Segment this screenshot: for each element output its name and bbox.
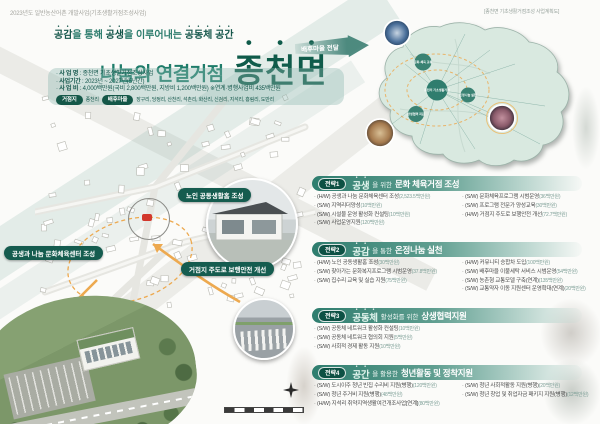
village-photo-3 [489, 105, 515, 131]
info-row: 사 업 비 : 4,000백만원(국비 2,800백만원, 지방비 1,200백… [56, 86, 336, 94]
project-info-box: 사 업 명 : 종천면 기초생활거점조성사업 사업기간 : 2023년 ~ 20… [48, 68, 344, 105]
program-caption: 2023년도 일반농산어촌 개발사업(기초생활거점조성사업) [10, 8, 146, 17]
senior-home-site-marker [128, 198, 170, 240]
strategy1-header: 전략1 공생 을 위한 문화 체육거점 조성 [312, 176, 582, 191]
info-row: 사 업 명 : 종천면 기초생활거점조성사업 [56, 71, 336, 79]
strategy2-badge: 전략2 [318, 244, 346, 256]
base-value: 종천리 [86, 96, 99, 104]
program-item: (H/W) 커뮤니티 승합차 도입(100백만원) [462, 259, 600, 268]
label-pedestrian-safety: 거점지 주도로 보행안전 개선 [181, 262, 274, 276]
center-building [77, 327, 141, 371]
program-item: (H/W) 지석리 취약지역생활여건개조사업[연계](80백만원) [314, 400, 462, 409]
strategy2-header: 전략2 공감 을 통한 온정나눔 실천 [312, 242, 582, 257]
node-label: 종천리 기초생활거점 [424, 87, 450, 92]
program-item: (S/W) 교통약자 이동 지원센터 운영확대(연계)(20백만원) [462, 285, 600, 294]
site-highlight [142, 214, 152, 221]
strategy2-items: (H/W) 노인 공동생활홈 조성(30백만원) (S/W) 찾아가는 문화복지… [314, 259, 600, 294]
villages-arrow-label: 배후마을 전달 [295, 42, 339, 54]
strategy3-items: (S/W) 공동체 네트워크 활성화 컨설팅(10백만원) (S/W) 공동체 … [314, 325, 600, 351]
crosswalk [240, 328, 287, 351]
program-item: (S/W) 문화체육프로그램 시범운영(36백만원) [462, 193, 600, 202]
base-badge: 거점지 [56, 95, 83, 105]
program-item: (S/W) 지역리더양성(10백만원) [314, 202, 462, 211]
north-compass-icon [283, 382, 299, 402]
green-median [235, 322, 293, 325]
program-item: (S/W) 사회적 경제 활동 지원(10백만원) [314, 343, 462, 352]
subtitle-word: 공감 [54, 30, 72, 41]
program-item: (S/W) 청년 창업 및 취업자금 패키지 지원(병행)(12백만원) [462, 391, 600, 400]
region-map-caption: [종천면 기초생활거점조성 사업계획도] [484, 8, 559, 15]
program-item: (S/W) 도시이주 청년 빈집 수리비 지원(병행)(120백만원) [314, 382, 462, 391]
strategy4-items: (S/W) 도시이주 청년 빈집 수리비 지원(병행)(120백만원) (S/W… [314, 382, 600, 408]
program-item: (S/W) 찾아가는 문화복지프로그램 시범운영(37.8백만원) [314, 268, 462, 277]
township-plan-map: 문화·체육 교류 종천리 기초생활거점 온정나눔 실천 상생협력 지원 [315, 14, 600, 174]
strategy1-badge: 전략1 [318, 178, 346, 190]
program-item: (S/W) 프로그램 전문가 양성교육(30백만원) [462, 202, 600, 211]
strategy1-items: (H/W) 공생과 나눔 문화체육센터 조성(2,523.5백만원) (S/W)… [314, 193, 600, 228]
program-item: (S/W) 청년 주거비 지원(병행)(48백만원) [314, 391, 462, 400]
program-item: (H/W) 노인 공동생활홈 조성(30백만원) [314, 259, 462, 268]
program-item: (S/W) 사업운영지원(120백만원) [314, 219, 462, 228]
village-photo-1 [384, 20, 410, 46]
label-senior-home: 노인 공동생활홈 조성 [178, 188, 251, 202]
program-item: (S/W) 집수리 교육 및 실습 지원(75백만원) [314, 277, 462, 286]
poster: 2023년도 일반농산어촌 개발사업(기초생활거점조성사업) 공감을 통해 공생… [0, 0, 600, 424]
strategy4-badge: 전략4 [318, 367, 346, 379]
program-item: (S/W) 공동체 네트워크 협의회 지원(5백만원) [314, 334, 462, 343]
villages-badge: 배후마을 [102, 95, 133, 105]
program-item: (S/W) 배후마을 이불세탁 서비스 시범운영(54백만원) [462, 268, 600, 277]
program-item: (H/W) 거점지 주도로 보행안전 개선(72.7백만원) [462, 211, 600, 220]
villages-row: 거점지 종천리 배후마을 장구리, 당정리, 산천리, 석촌리, 화산리, 신검… [56, 95, 336, 105]
node-label: 문화·체육 교류 [414, 59, 433, 64]
program-item: (H/W) 공생과 나눔 문화체육센터 조성(2,523.5백만원) [314, 193, 462, 202]
street-improvement-photo [233, 298, 295, 360]
label-culture-center: 공생과 나눔 문화체육센터 조성 [4, 246, 103, 260]
program-item: (S/W) 공동체 네트워크 활성화 컨설팅(10백만원) [314, 325, 462, 334]
villages-list: 장구리, 당정리, 산천리, 석촌리, 화산리, 신검리, 지석리, 흥림리, … [136, 96, 274, 104]
program-item: (S/W) 농촌형 교통모델 구축(연계)(135백만원) [462, 277, 600, 286]
village-photo-2 [366, 119, 394, 147]
strategy4-header: 전략4 공간 을 활용한 청년활동 및 정착지원 [312, 365, 582, 380]
scale-bar [224, 407, 304, 413]
strategy3-badge: 전략3 [318, 310, 346, 322]
node-label: 온정나눔 실천 [459, 92, 477, 97]
program-item: (S/W) 청년 사회적활동 지원(병행)(20백만원) [462, 382, 600, 391]
node-label: 상생협력 지원 [407, 111, 425, 116]
strategy3-header: 전략3 공동체 활성화를 위한 상생협력지원 [312, 308, 582, 323]
program-item: (S/W) 시설물 운영 활성화 컨설팅(10백만원) [314, 211, 462, 220]
